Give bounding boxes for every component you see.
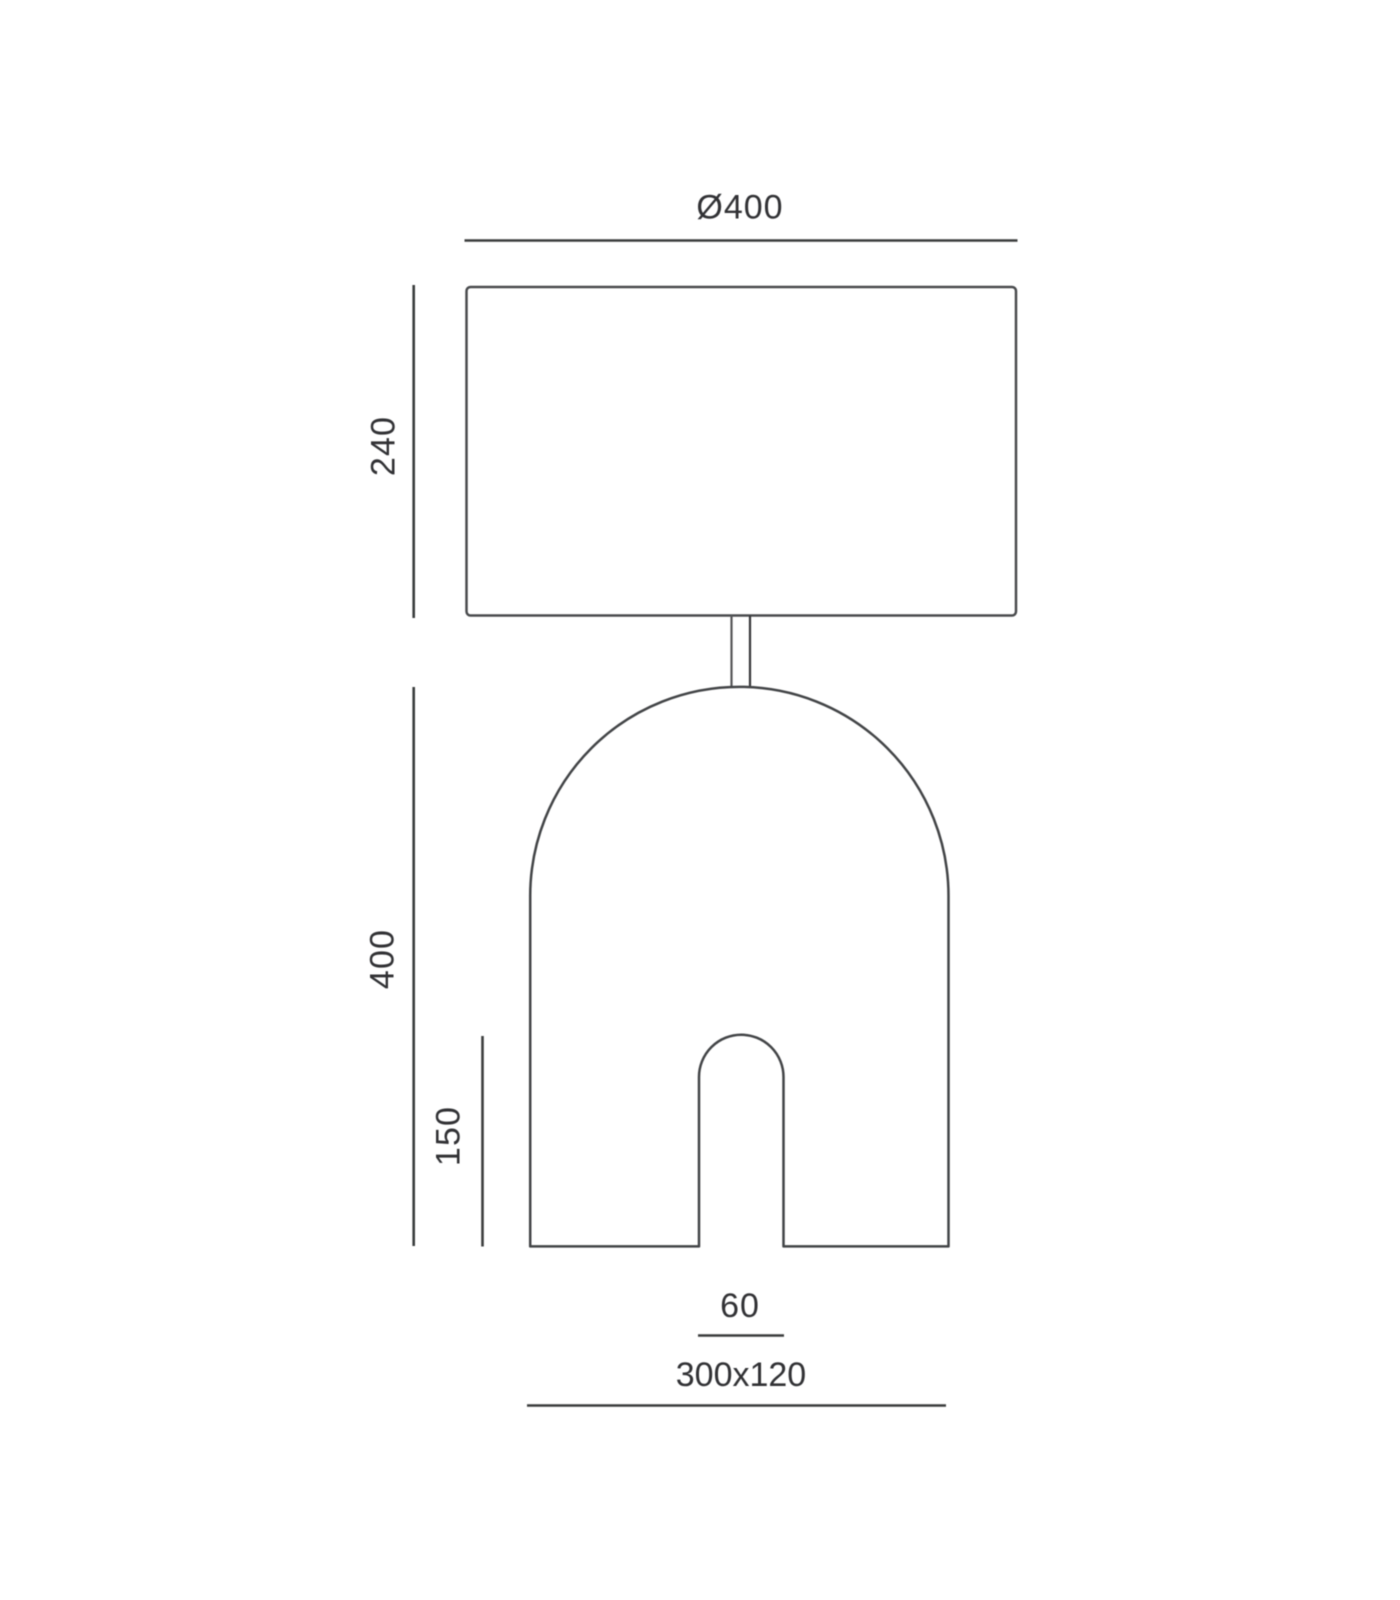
svg-text:60: 60 xyxy=(720,1287,760,1325)
svg-text:150: 150 xyxy=(430,1106,468,1166)
svg-text:300x120: 300x120 xyxy=(676,1356,806,1394)
svg-text:Ø400: Ø400 xyxy=(696,189,783,227)
svg-text:240: 240 xyxy=(365,416,403,476)
svg-text:400: 400 xyxy=(364,929,402,989)
